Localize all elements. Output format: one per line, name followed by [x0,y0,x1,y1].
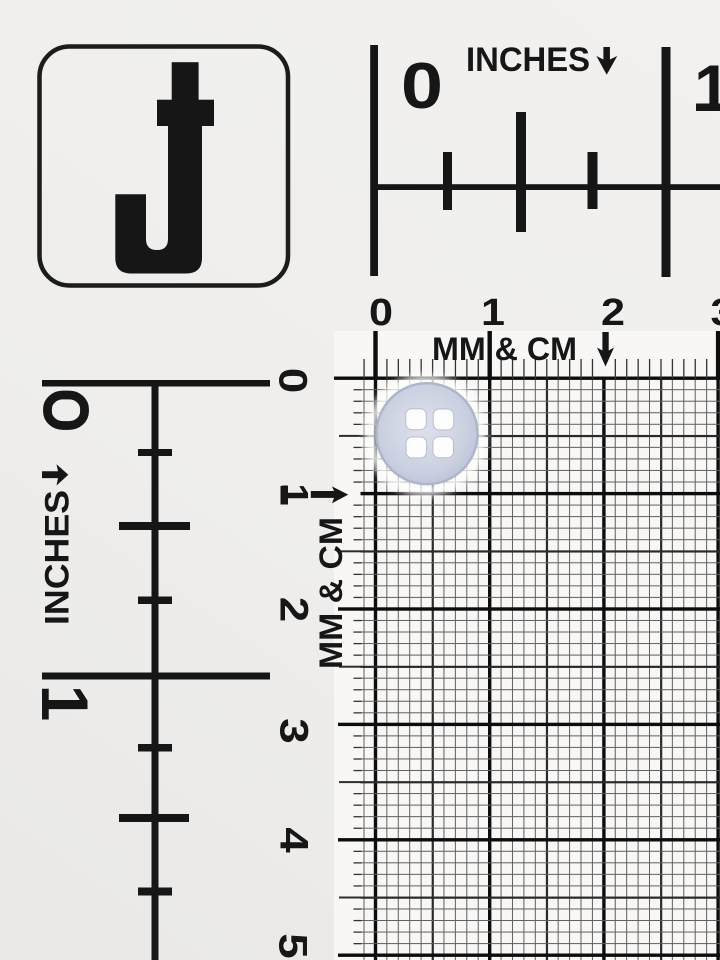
svg-text:5: 5 [271,933,315,959]
svg-text:3: 3 [272,718,316,744]
svg-text:1: 1 [28,685,102,722]
svg-text:0: 0 [401,49,443,122]
svg-text:1: 1 [272,483,316,505]
svg-text:0: 0 [369,292,393,334]
svg-text:2: 2 [272,597,316,623]
svg-text:MM & CM: MM & CM [313,517,349,669]
svg-text:INCHES: INCHES [466,41,590,79]
svg-text:0: 0 [271,368,315,394]
svg-text:1: 1 [694,51,720,125]
svg-text:3: 3 [711,292,720,334]
svg-text:1: 1 [481,292,505,334]
svg-text:MM & CM: MM & CM [432,331,577,367]
svg-text:INCHES: INCHES [39,490,77,625]
svg-text:4: 4 [272,827,316,853]
svg-text:2: 2 [601,292,625,334]
